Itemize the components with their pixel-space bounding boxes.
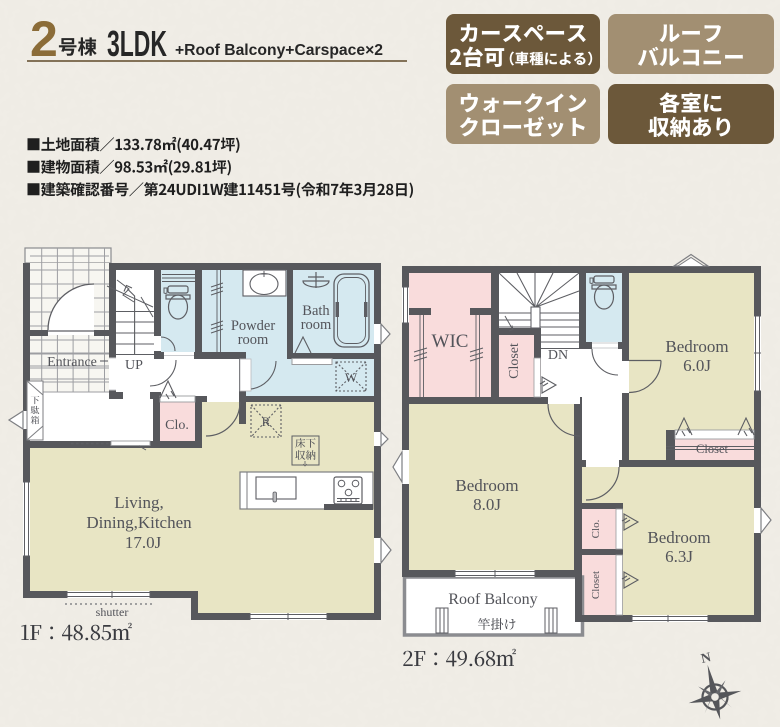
svg-text:Roof Balcony: Roof Balcony <box>448 591 537 608</box>
svg-text:room: room <box>301 317 332 333</box>
svg-text:6.0J: 6.0J <box>683 356 711 375</box>
svg-text:Entrance: Entrance <box>47 355 97 370</box>
svg-text:Closet: Closet <box>590 571 602 599</box>
svg-text:Closet: Closet <box>507 343 522 379</box>
svg-text:room: room <box>238 332 269 348</box>
svg-text:+Roof Balcony+Carspace×2: +Roof Balcony+Carspace×2 <box>175 42 383 59</box>
svg-text:17.0J: 17.0J <box>125 533 162 552</box>
svg-text:DN: DN <box>548 348 568 363</box>
svg-text:8.0J: 8.0J <box>473 495 501 514</box>
svg-text:R: R <box>262 414 271 429</box>
svg-text:Bedroom: Bedroom <box>455 476 518 495</box>
svg-text:Dining,Kitchen: Dining,Kitchen <box>86 513 192 532</box>
svg-text:3LDK: 3LDK <box>107 23 167 64</box>
svg-text:UP: UP <box>125 358 143 373</box>
svg-text:Bedroom: Bedroom <box>647 528 710 547</box>
svg-text:6.3J: 6.3J <box>665 547 693 566</box>
svg-text:Closet: Closet <box>696 442 728 456</box>
svg-text:Clo.: Clo. <box>590 519 602 538</box>
svg-text:W: W <box>345 370 358 385</box>
svg-text:2: 2 <box>30 11 58 67</box>
svg-text:shutter: shutter <box>96 605 129 619</box>
svg-text:Clo.: Clo. <box>165 418 189 433</box>
svg-text:Bedroom: Bedroom <box>665 337 728 356</box>
svg-text:WIC: WIC <box>432 331 469 352</box>
svg-text:Living,: Living, <box>114 493 164 512</box>
